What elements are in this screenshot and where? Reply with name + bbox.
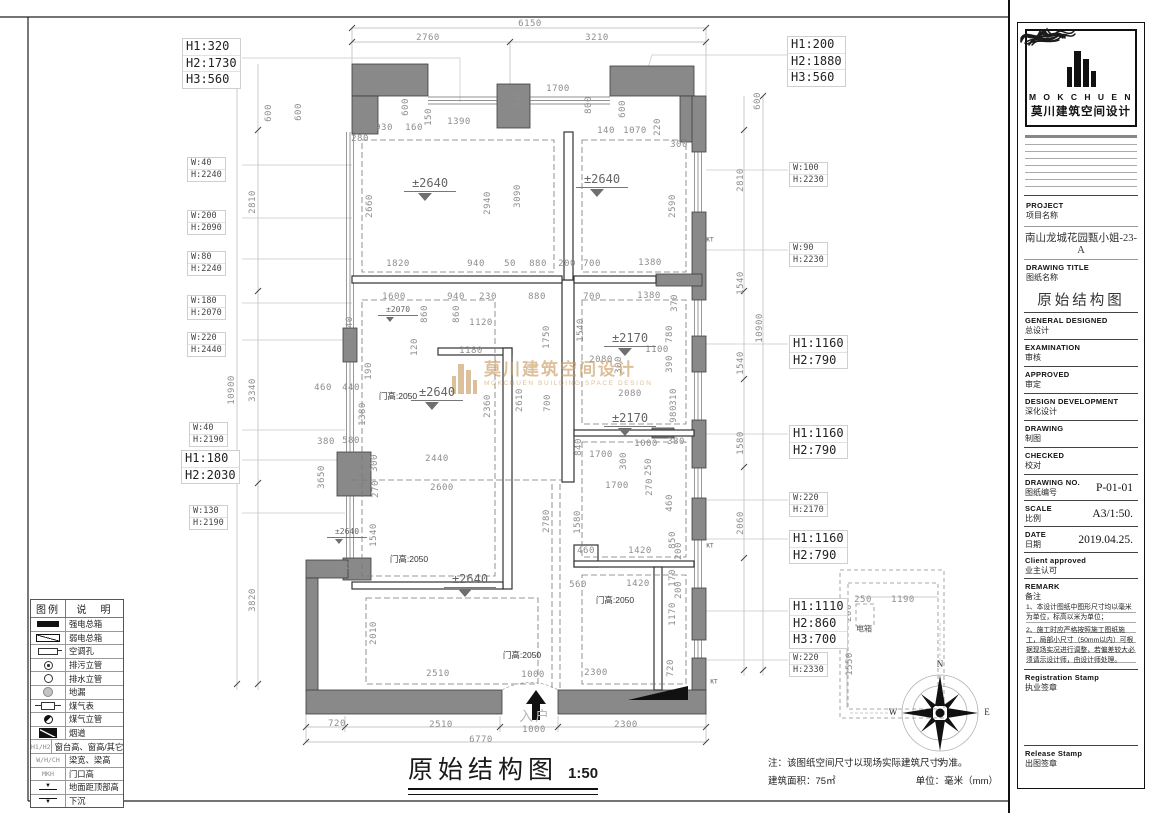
level-triangle-icon xyxy=(386,317,394,322)
dimension-label: 2660 xyxy=(365,194,375,218)
scale-value: A3/1:50. xyxy=(1092,508,1137,520)
level-marker: ±2640 xyxy=(576,172,628,197)
dimension-label: 700 xyxy=(543,394,553,412)
dimension-label: 390 xyxy=(665,355,675,373)
legend-header-symbol: 图例 xyxy=(31,600,66,617)
dimension-label: 1540 xyxy=(576,318,586,342)
dimension-label: 3820 xyxy=(248,588,258,612)
sign-field-制图: DRAWING制图 xyxy=(1024,420,1138,447)
dimension-label: 3650 xyxy=(317,465,327,489)
level-triangle-icon xyxy=(618,348,632,356)
beam-window-tag: W:220H:2330 xyxy=(789,652,828,677)
dimension-label: 580 xyxy=(342,436,360,446)
sign-label-zh: 制图 xyxy=(1025,433,1069,444)
scale-label-en: SCALE xyxy=(1025,504,1052,513)
level-triangle-icon xyxy=(590,189,604,197)
dimension-label: 720 xyxy=(328,719,346,729)
drawing-caption: 原始结构图 1:50 xyxy=(408,750,598,795)
legend-kt-icon xyxy=(31,645,66,658)
tag-line: H:2190 xyxy=(190,435,227,446)
dimension-label: 800 xyxy=(584,96,594,114)
legend-label: 强电总箱 xyxy=(66,618,123,630)
dimension-label: 120 xyxy=(410,338,420,356)
sign-label-en: APPROVED xyxy=(1025,370,1070,379)
sign-label-zh: 审核 xyxy=(1025,352,1080,363)
dimension-label: 160 xyxy=(405,123,423,133)
level-value: ±2640 xyxy=(404,176,456,192)
legend-solid-icon xyxy=(31,618,66,631)
tag-line: H3:560 xyxy=(183,72,240,88)
beam-window-tag: H1:1160H2:790 xyxy=(789,425,848,459)
legend-label: 烟道 xyxy=(66,727,123,739)
legend-chalf-icon xyxy=(31,713,66,726)
drawing-no-value: P-01-01 xyxy=(1096,482,1137,494)
project-name: 南山龙城花园甄小姐-23-A xyxy=(1024,226,1138,260)
tag-line: W:180 xyxy=(188,296,225,308)
level-marker: ±2070 xyxy=(378,305,418,322)
tag-line: H1:320 xyxy=(183,39,240,56)
dimension-label: 880 xyxy=(529,259,547,269)
beam-window-tag: H1:320H2:1730H3:560 xyxy=(182,38,241,89)
dimension-label: 460 xyxy=(314,383,332,393)
beam-window-tag: W:220H:2440 xyxy=(187,332,226,357)
dimension-label: 2080 xyxy=(589,355,613,365)
sign-label-zh: 总设计 xyxy=(1025,325,1108,336)
tag-line: H1:1160 xyxy=(790,531,847,548)
legend-flue-icon xyxy=(31,727,66,740)
sign-label-en: DESIGN DEVELOPMENT xyxy=(1025,397,1118,406)
dimension-label: 220 xyxy=(653,118,663,136)
dimension-label: 150 xyxy=(424,108,434,126)
dimension-label: 1820 xyxy=(386,259,410,269)
tag-line: H3:560 xyxy=(788,70,845,86)
dimension-label: 720 xyxy=(666,659,676,677)
project-label-en: PROJECT xyxy=(1026,201,1136,210)
dimension-label: 600 xyxy=(618,100,628,118)
level-value: ±2640 xyxy=(327,527,367,538)
dimension-label: 1540 xyxy=(736,271,746,295)
unit-note: 单位：毫米（mm） xyxy=(916,773,998,791)
beam-window-tag: W:180H:2070 xyxy=(187,295,226,320)
beam-window-tag: W:90H:2230 xyxy=(789,242,828,267)
dimension-label: 1750 xyxy=(542,325,552,349)
dimension-label: 3210 xyxy=(585,33,609,43)
date-field: DATE 日期 2019.04.25. xyxy=(1024,526,1138,552)
legend-label: 空调孔 xyxy=(66,645,123,657)
dimension-label: 460 xyxy=(577,546,595,556)
legend-label: 地面距顶部高 xyxy=(66,781,123,793)
dimension-label: 2060 xyxy=(736,511,746,535)
dimension-label: 520 xyxy=(513,90,523,108)
legend-row: 地漏 xyxy=(31,686,123,700)
dimension-label: 200 xyxy=(558,259,576,269)
tag-line: H1:1160 xyxy=(790,336,847,353)
legend-label: 门口高 xyxy=(66,768,123,780)
dimension-label: 1700 xyxy=(546,84,570,94)
legend-hatch-icon xyxy=(31,632,66,645)
level-triangle-icon xyxy=(335,539,343,544)
area-note: 建筑面积：75㎡ xyxy=(768,773,836,791)
client-label-en: Client approved xyxy=(1025,556,1115,565)
caption-underline xyxy=(408,788,598,795)
sign-field-审核: EXAMINATION审核 xyxy=(1024,339,1138,366)
dimension-label: 10900 xyxy=(227,375,237,405)
dimension-label: 250 xyxy=(854,595,872,605)
dimension-label: 600 xyxy=(264,104,274,122)
beam-window-tag: W:40H:2240 xyxy=(187,157,226,182)
tag-line: H2:790 xyxy=(790,548,847,564)
dimension-label: 2780 xyxy=(542,509,552,533)
beam-window-tag: W:130H:2190 xyxy=(189,505,228,530)
dimension-label: 2360 xyxy=(483,394,493,418)
dimension-label: 10900 xyxy=(755,313,765,343)
sign-label-en: EXAMINATION xyxy=(1025,343,1080,352)
legend-lvldn-icon: ▼ xyxy=(31,795,66,808)
dimension-label: 230 xyxy=(479,292,497,302)
dimension-label: 1190 xyxy=(891,595,915,605)
dimension-label: 200 xyxy=(674,581,684,599)
legend-row: 空调孔 xyxy=(31,645,123,659)
tag-line: H:2440 xyxy=(188,345,225,356)
legend-row: 煤气表 xyxy=(31,700,123,714)
level-triangle-icon xyxy=(425,402,439,410)
level-value: ±2170 xyxy=(604,331,656,347)
dimension-label: 2440 xyxy=(425,454,449,464)
remark-note-line: 2、施工时应严格按照施工图纸施工，局部小尺寸（50mm以内）可根据现场实况进行调… xyxy=(1026,626,1136,666)
dimension-label: 1000 xyxy=(521,670,545,680)
dimension-label: 700 xyxy=(583,259,601,269)
level-value: ±2070 xyxy=(378,305,418,316)
registration-label-en: Registration Stamp xyxy=(1025,673,1115,682)
dimension-label: 860 xyxy=(420,305,430,323)
dimension-label: 2510 xyxy=(429,720,453,730)
dimension-label: 960 xyxy=(334,562,352,572)
drawing-no-label-zh: 图纸编号 xyxy=(1025,487,1080,498)
dimension-label: 1000 xyxy=(522,725,546,735)
note-line: 注：该图纸空间尺寸以现场实际建筑尺寸为准。 xyxy=(768,755,998,773)
level-marker: ±2640 xyxy=(444,572,496,597)
legend-row: 煤气立管 xyxy=(31,713,123,727)
tag-line: H2:860 xyxy=(790,616,847,633)
client-approved-field: Client approved 业主认可 xyxy=(1024,552,1138,578)
legend-c-icon xyxy=(31,672,66,685)
legend-gas-icon xyxy=(31,700,66,713)
level-marker: ±2640 xyxy=(411,385,463,410)
dimension-label: 700 xyxy=(583,292,601,302)
tag-line: H2:790 xyxy=(790,443,847,459)
dimension-label: 1580 xyxy=(736,431,746,455)
tag-line: H2:1880 xyxy=(788,54,845,71)
beam-window-tag: W:200H:2090 xyxy=(187,210,226,235)
dimension-label: 860 xyxy=(452,305,462,323)
legend-label: 煤气表 xyxy=(66,700,123,712)
door-height-label: 门高:2050 xyxy=(503,649,541,661)
scale-label-zh: 比例 xyxy=(1025,513,1052,524)
legend-table: 图例 说 明 强电总箱弱电总箱空调孔排污立管排水立管地漏煤气表煤气立管烟道H1/… xyxy=(30,599,124,808)
legend-row: 弱电总箱 xyxy=(31,632,123,646)
tag-line: H:2230 xyxy=(790,255,827,266)
tag-line: W:220 xyxy=(188,333,225,345)
tag-line: H2:790 xyxy=(790,353,847,369)
remark-label-en: REMARK xyxy=(1025,582,1060,591)
dimension-label: 1540 xyxy=(369,523,379,547)
level-marker: ±2170 xyxy=(604,331,656,356)
dimension-label: 2610 xyxy=(515,388,525,412)
dimension-label: 270 xyxy=(645,478,655,496)
dimension-label: 1600 xyxy=(382,292,406,302)
drawing-no-label-en: DRAWING NO. xyxy=(1025,478,1080,487)
ac-hole-label: KT xyxy=(710,679,717,686)
dimension-label: 6150 xyxy=(518,19,542,29)
legend-header: 图例 说 明 xyxy=(31,600,123,618)
drawing-notes: 注：该图纸空间尺寸以现场实际建筑尺寸为准。 建筑面积：75㎡ 单位：毫米（mm） xyxy=(768,755,998,791)
legend-label: 煤气立管 xyxy=(66,713,123,725)
dimension-label: 140 xyxy=(597,126,615,136)
level-triangle-icon xyxy=(618,428,632,436)
legend-lvlup-icon: ▼ xyxy=(31,781,66,794)
dimension-label: 2940 xyxy=(483,191,493,215)
project-label-zh: 项目名称 xyxy=(1026,210,1136,221)
tag-line: H:2240 xyxy=(188,264,225,275)
tag-line: H2:1730 xyxy=(183,56,240,73)
legend-label: 排水立管 xyxy=(66,673,123,685)
dimension-label: 780 xyxy=(665,325,675,343)
brand-name-zh: 莫川建筑空间设计 xyxy=(1031,103,1131,119)
entrance-label: 入户 xyxy=(519,706,551,726)
dimension-label: 1440 xyxy=(345,316,355,340)
level-value: ±2170 xyxy=(604,411,656,427)
registration-stamp-field: Registration Stamp 执业签章 xyxy=(1024,669,1138,745)
dimension-label: 2760 xyxy=(416,33,440,43)
dimension-label: 1380 xyxy=(637,291,661,301)
dimension-label: 3090 xyxy=(513,184,523,208)
drawing-title-field: DRAWING TITLE 图纸名称 xyxy=(1018,260,1144,285)
tag-line: W:40 xyxy=(188,158,225,170)
sign-label-en: GENERAL DESIGNED xyxy=(1025,316,1108,325)
legend-row: 烟道 xyxy=(31,727,123,741)
dimension-label: 930 xyxy=(375,123,393,133)
beam-window-tag: H1:180H2:2030 xyxy=(181,450,240,484)
dimension-label: 2300 xyxy=(584,668,608,678)
brand-logo-icon xyxy=(1067,49,1096,87)
dimension-label: 3340 xyxy=(248,378,258,402)
legend-code: H1/H2 xyxy=(31,740,52,753)
drawing-no-field: DRAWING NO. 图纸编号 P-01-01 xyxy=(1024,474,1138,500)
sign-field-校对: CHECKED校对 xyxy=(1024,447,1138,474)
dimension-label: 880 xyxy=(528,292,546,302)
tag-line: H1:180 xyxy=(182,451,239,468)
dimension-label: 2590 xyxy=(668,194,678,218)
dimension-label: 380 xyxy=(317,437,335,447)
legend-row: W/H/CH梁宽、梁高 xyxy=(31,754,123,768)
dimension-label: 980 xyxy=(669,405,679,423)
tag-line: W:220 xyxy=(790,653,827,665)
legend-label: 梁宽、梁高 xyxy=(66,754,123,766)
legend-label: 排污立管 xyxy=(66,659,123,671)
dimension-label: 600 xyxy=(401,98,411,116)
tag-line: H:2230 xyxy=(790,175,827,186)
legend-label: 窗台高、窗高/其它 xyxy=(52,741,124,753)
dimension-label: 440 xyxy=(342,383,360,393)
door-height-label: 门高:2050 xyxy=(596,594,634,606)
project-field: PROJECT 项目名称 xyxy=(1018,198,1144,223)
dimension-label: 560 xyxy=(569,580,587,590)
date-value: 2019.04.25. xyxy=(1078,534,1137,546)
beam-window-tag: W:100H:2230 xyxy=(789,162,828,187)
level-triangle-icon xyxy=(418,193,432,201)
dimension-label: 300 xyxy=(370,454,380,472)
release-stamp-field: Release Stamp 出图签章 xyxy=(1024,745,1138,809)
sign-field-深化设计: DESIGN DEVELOPMENT深化设计 xyxy=(1024,393,1138,420)
dimension-label: 1420 xyxy=(626,579,650,589)
level-value: ±2640 xyxy=(411,385,463,401)
tag-line: W:200 xyxy=(188,211,225,223)
tag-line: H:2240 xyxy=(188,170,225,181)
tag-line: H:2190 xyxy=(190,518,227,529)
legend-row: H1/H2窗台高、窗高/其它 xyxy=(31,740,123,754)
beam-window-tag: H1:1110H2:860H3:700 xyxy=(789,598,848,649)
tag-line: H3:700 xyxy=(790,632,847,648)
scale-field: SCALE 比例 A3/1:50. xyxy=(1024,500,1138,526)
dimension-label: 940 xyxy=(467,259,485,269)
sign-label-zh: 校对 xyxy=(1025,460,1069,471)
tag-line: H:2070 xyxy=(188,308,225,319)
legend-label: 地漏 xyxy=(66,686,123,698)
signature-icon xyxy=(1018,23,1078,49)
dimension-label: 1000 xyxy=(634,439,658,449)
tag-line: H1:200 xyxy=(788,37,845,54)
dimension-label: 190 xyxy=(364,362,374,380)
sign-label-en: CHECKED xyxy=(1025,451,1069,460)
dimension-label: 300 xyxy=(614,356,624,374)
legend-code: MKH xyxy=(31,768,66,781)
dimension-label: 2080 xyxy=(618,389,642,399)
dimension-label: 460 xyxy=(665,494,675,512)
tag-line: H:2330 xyxy=(790,665,827,676)
tag-line: H2:2030 xyxy=(182,468,239,484)
tag-line: W:90 xyxy=(790,243,827,255)
tag-line: W:40 xyxy=(190,423,227,435)
dimension-label: 280 xyxy=(351,134,369,144)
beam-window-tag: W:40H:2190 xyxy=(189,422,228,447)
beam-window-tag: H1:200H2:1880H3:560 xyxy=(787,36,846,87)
tag-line: H:2090 xyxy=(188,223,225,234)
dimension-label: 380 xyxy=(667,437,685,447)
dimension-label: 2300 xyxy=(614,720,638,730)
compass-north-label: N xyxy=(937,659,944,669)
remark-note-line: 1、本设计图纸中图形尺寸均以毫米为单位，标高以米为单位； xyxy=(1026,603,1136,623)
tag-line: H1:1160 xyxy=(790,426,847,443)
sign-label-zh: 审定 xyxy=(1025,379,1070,390)
dimension-label: 840 xyxy=(574,438,584,456)
dimension-label: 200 xyxy=(674,542,684,560)
dimension-label: 6770 xyxy=(469,735,493,745)
dimension-label: 370 xyxy=(670,294,680,312)
level-triangle-icon xyxy=(458,589,472,597)
legend-row: 排水立管 xyxy=(31,672,123,686)
dimension-label: 300 xyxy=(670,140,688,150)
dimension-label: 2810 xyxy=(248,190,258,214)
legend-cdot-icon xyxy=(31,659,66,672)
beam-window-tag: W:220H:2170 xyxy=(789,492,828,517)
sign-label-zh: 深化设计 xyxy=(1025,406,1118,417)
sign-label-en: DRAWING xyxy=(1025,424,1069,433)
dimension-label: 1390 xyxy=(447,117,471,127)
dimension-label: 1540 xyxy=(736,351,746,375)
release-label-en: Release Stamp xyxy=(1025,749,1115,758)
title-block: M O K C H U E N 莫川建筑空间设计 PROJECT 项目名称 南山… xyxy=(1008,0,1150,813)
level-marker: ±2640 xyxy=(327,527,367,544)
date-label-zh: 日期 xyxy=(1025,539,1046,550)
remark-notes: 1、本设计图纸中图形尺寸均以毫米为单位，标高以米为单位；2、施工时应严格按照施工… xyxy=(1026,603,1136,666)
beam-window-tag: H1:1160H2:790 xyxy=(789,335,848,369)
dimension-label: 250 xyxy=(644,458,654,476)
legend-header-desc: 说 明 xyxy=(66,600,123,617)
legend-row: ▼下沉 xyxy=(31,795,123,808)
tag-line: H:2170 xyxy=(790,505,827,516)
dimension-label: 2010 xyxy=(369,621,379,645)
dimension-label: 940 xyxy=(447,292,465,302)
legend-row: 强电总箱 xyxy=(31,618,123,632)
ac-hole-label: KT xyxy=(706,543,713,550)
legend-row: MKH门口高 xyxy=(31,768,123,782)
dimension-label: 1380 xyxy=(638,258,662,268)
dimension-label: 2600 xyxy=(430,483,454,493)
tag-line: H1:1110 xyxy=(790,599,847,616)
release-label-zh: 出图签章 xyxy=(1025,758,1115,769)
floor-plan-annotations: 6150276032106002809301601501390600520170… xyxy=(0,0,1150,813)
dimension-label: 1580 xyxy=(573,510,583,534)
drawing-title-value: 原始结构图 xyxy=(1018,285,1144,312)
legend-label: 弱电总箱 xyxy=(66,632,123,644)
dimension-label: 1120 xyxy=(469,318,493,328)
dimension-label: 1550 xyxy=(845,652,855,676)
door-height-label: 门高:2050 xyxy=(390,553,428,565)
tag-line: W:100 xyxy=(790,163,827,175)
client-label-zh: 业主认可 xyxy=(1025,565,1115,576)
tag-line: W:220 xyxy=(790,493,827,505)
dimension-label: 310 xyxy=(669,388,679,406)
level-value: ±2640 xyxy=(444,572,496,588)
tag-line: W:130 xyxy=(190,506,227,518)
dimension-label: 1070 xyxy=(623,126,647,136)
tag-line: W:80 xyxy=(188,252,225,264)
dimension-label: 270 xyxy=(371,480,381,498)
sign-field-总设计: GENERAL DESIGNED总设计 xyxy=(1024,312,1138,339)
dimension-label: 2510 xyxy=(426,669,450,679)
drawing-title-label-en: DRAWING TITLE xyxy=(1026,263,1136,272)
beam-window-tag: H1:1160H2:790 xyxy=(789,530,848,564)
dimension-label: 1380 xyxy=(358,402,368,426)
level-marker: ±2170 xyxy=(604,411,656,436)
dimension-label: 1700 xyxy=(589,450,613,460)
dimension-label: 1700 xyxy=(605,481,629,491)
dimension-label: 600 xyxy=(294,103,304,121)
door-height-label: 门高:2050 xyxy=(379,390,417,402)
compass-west-label: W xyxy=(889,707,898,717)
dimension-label: 50 xyxy=(504,259,516,269)
level-value: ±2640 xyxy=(576,172,628,188)
level-marker: ±2640 xyxy=(404,176,456,201)
dimension-label: 300 xyxy=(619,452,629,470)
dimension-label: 1420 xyxy=(628,546,652,556)
legend-label: 下沉 xyxy=(66,795,123,807)
drawing-sheet: 6150276032106002809301601501390600520170… xyxy=(0,0,1150,813)
registration-label-zh: 执业签章 xyxy=(1025,682,1115,693)
legend-code: W/H/CH xyxy=(31,754,66,767)
dimension-label: 2810 xyxy=(736,168,746,192)
beam-window-tag: W:80H:2240 xyxy=(187,251,226,276)
